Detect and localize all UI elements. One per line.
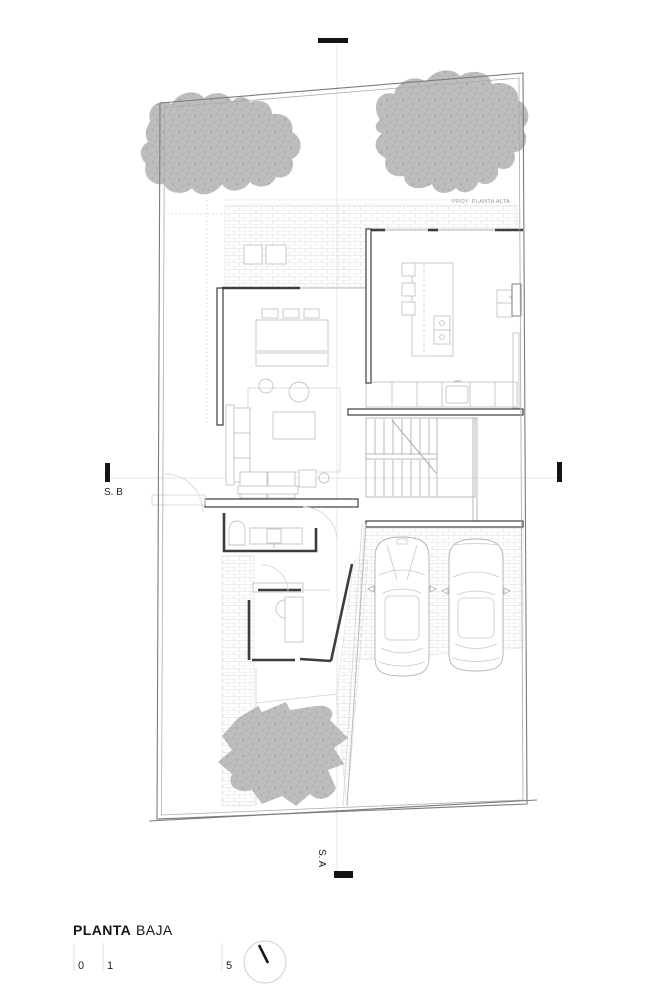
bathroom xyxy=(205,499,358,551)
proy-planta-alta-label: PROY. PLANTA ALTA xyxy=(452,199,510,205)
entry-door-arc xyxy=(165,474,203,512)
living-west-wall xyxy=(217,288,223,425)
dining-set xyxy=(256,309,328,366)
scale-bar: 0 1 5 xyxy=(74,943,232,972)
entry-step xyxy=(152,495,205,505)
kitchen xyxy=(366,263,521,408)
coffee-table xyxy=(273,412,315,439)
north-arrow-icon xyxy=(244,941,286,983)
plant-pot xyxy=(259,379,273,393)
car-top-view xyxy=(442,539,510,671)
entry xyxy=(152,474,205,512)
tree-canopy xyxy=(376,70,529,193)
scale-label-1: 1 xyxy=(107,960,113,972)
side-table xyxy=(299,470,316,487)
section-b-right-tick xyxy=(557,462,562,482)
flue xyxy=(512,284,521,316)
dining-table xyxy=(256,320,328,351)
garage-rear-wall xyxy=(366,521,523,527)
vanity xyxy=(250,528,302,544)
section-a-bottom-tick xyxy=(334,871,353,878)
footer: PLANTA BAJA 0 1 5 xyxy=(73,922,286,983)
section-b-left-tick xyxy=(105,463,110,482)
car-top-view xyxy=(368,537,436,676)
desk xyxy=(285,597,303,642)
staircase xyxy=(366,418,477,522)
stool xyxy=(402,263,415,276)
living-area xyxy=(226,379,340,498)
section-b-label: S. B xyxy=(104,487,123,498)
scale-label-5: 5 xyxy=(226,960,232,972)
door-swing-arc xyxy=(303,507,337,541)
section-a-label: S. A xyxy=(316,849,327,868)
kitchen-west-wall xyxy=(366,229,371,383)
bathroom-top-wall xyxy=(205,499,358,507)
entry-wedge-paving xyxy=(336,560,368,806)
scale-label-0: 0 xyxy=(78,960,84,972)
dining-bench xyxy=(256,353,328,366)
section-a-top-tick xyxy=(318,38,348,43)
plan-title-light: BAJA xyxy=(136,922,173,938)
floor-plan-drawing: PROY. PLANTA ALTA xyxy=(0,0,647,1000)
plan-title-bold: PLANTA xyxy=(73,922,131,938)
toilet xyxy=(229,521,245,545)
plant-pot xyxy=(289,382,309,402)
kitchen-cabinets xyxy=(366,381,517,407)
stool xyxy=(402,283,415,296)
stool xyxy=(402,302,415,315)
vegetation xyxy=(141,70,528,806)
desk-chair xyxy=(276,600,285,618)
stair-north-wall xyxy=(348,409,523,415)
